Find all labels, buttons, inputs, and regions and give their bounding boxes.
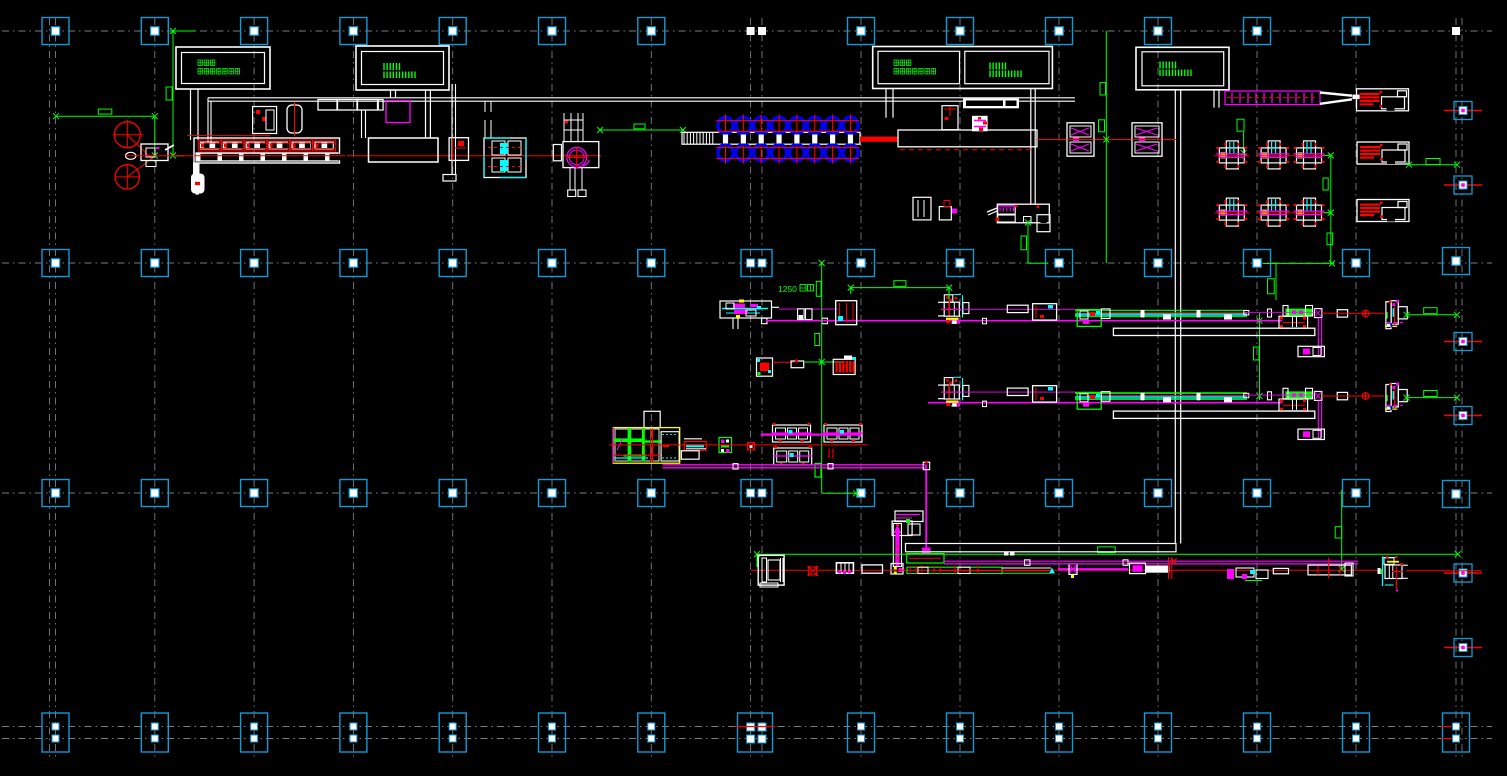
svg-text:1250: 1250	[778, 284, 797, 294]
